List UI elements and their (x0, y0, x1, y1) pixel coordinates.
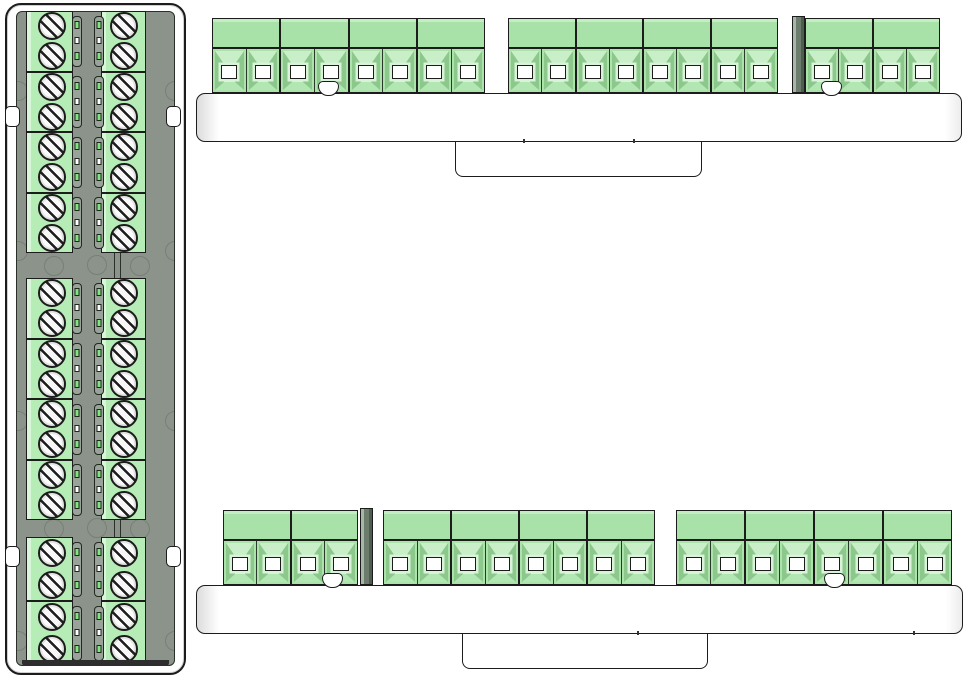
capsule-contact (75, 21, 80, 29)
terminal-block-band (417, 18, 485, 48)
wire-opening (847, 65, 863, 79)
screw-terminal (38, 12, 66, 40)
clamp-capsule (94, 464, 104, 516)
capsule-contact (75, 565, 80, 572)
gap-connector-line (120, 520, 121, 537)
terminal-block-band (643, 18, 711, 48)
capsule-contact (75, 173, 80, 181)
screw-terminal (38, 73, 66, 101)
terminal-block-front (873, 48, 941, 93)
wire-entry-pole (451, 49, 485, 92)
wire-entry-pole (677, 541, 710, 584)
wire-entry-pole (417, 541, 451, 584)
capsule-contact (97, 486, 102, 493)
wire-opening (652, 65, 668, 79)
wire-entry-pole (520, 541, 553, 584)
terminal-block-band (223, 510, 291, 540)
capsule-contact (97, 319, 102, 327)
wire-opening (221, 65, 237, 79)
capsule-contact (75, 98, 80, 105)
capsule-contact (75, 409, 80, 417)
wire-entry-pole (292, 541, 324, 584)
terminal-block-front (508, 48, 576, 93)
screw-terminal (38, 539, 66, 567)
ghost-circle (44, 519, 64, 539)
module-bottom-seal (22, 660, 169, 666)
capsule-contact (75, 425, 80, 432)
wire-entry-pole (609, 49, 642, 92)
ghost-circle (87, 255, 107, 275)
ghost-circle (44, 256, 64, 276)
board-edge-mark (637, 631, 639, 635)
capsule-contact (75, 113, 80, 121)
clamp-capsule (94, 404, 104, 456)
capsule-contact (75, 470, 80, 478)
ghost-circle (165, 631, 175, 651)
clamp-capsule (72, 343, 82, 395)
wire-opening (824, 557, 840, 571)
terminal-block-front (711, 48, 779, 93)
wire-opening (255, 65, 271, 79)
terminal-block-front (643, 48, 711, 93)
screw-terminal (38, 635, 66, 663)
circuit-board-edge (196, 93, 962, 142)
capsule-contact (75, 440, 80, 448)
capsule-contact (97, 173, 102, 181)
wire-opening (753, 65, 769, 79)
capsule-contact (75, 234, 80, 242)
capsule-contact (97, 548, 102, 556)
screw-terminal (38, 603, 66, 631)
wire-entry-pole (509, 49, 541, 92)
wire-opening (460, 557, 476, 571)
ghost-circle (165, 81, 175, 101)
screw-terminal (38, 491, 66, 519)
din-side-clip (166, 546, 181, 567)
capsule-contact (75, 486, 80, 493)
capsule-contact (97, 158, 102, 165)
board-connector-tab (462, 632, 708, 669)
screw-terminal (110, 461, 138, 489)
terminal-block-front (676, 540, 745, 585)
capsule-contact (75, 581, 80, 589)
capsule-contact (97, 82, 102, 90)
wire-entry-pole (621, 541, 655, 584)
wire-opening (300, 557, 316, 571)
terminal-block-band (814, 510, 883, 540)
wire-entry-pole (541, 49, 574, 92)
wire-entry-pole (246, 49, 280, 92)
clamp-capsule (94, 137, 104, 189)
capsule-contact (97, 501, 102, 509)
screw-terminal (38, 461, 66, 489)
screw-terminal (110, 603, 138, 631)
wire-opening (358, 65, 374, 79)
wire-entry-pole (485, 541, 519, 584)
capsule-contact (75, 319, 80, 327)
wire-entry-pole (452, 541, 485, 584)
gap-connector-line (114, 253, 115, 278)
terminal-block-side-profile (360, 508, 373, 585)
wire-entry-pole (710, 541, 744, 584)
wire-entry-pole (917, 541, 951, 584)
clamp-capsule (94, 283, 104, 335)
terminal-block-band (519, 510, 587, 540)
wire-opening (265, 557, 281, 571)
terminal-block-front (417, 48, 485, 93)
wire-opening (426, 557, 442, 571)
screw-terminal (38, 224, 66, 252)
board-edge-mark (633, 139, 635, 143)
terminal-block-band (212, 18, 280, 48)
wire-opening (720, 65, 736, 79)
wire-opening (585, 65, 601, 79)
screw-terminal (110, 539, 138, 567)
screw-terminal (110, 103, 138, 131)
capsule-contact (75, 645, 80, 653)
din-side-clip (166, 106, 181, 127)
terminal-block-front (383, 540, 451, 585)
terminal-block-band (291, 510, 359, 540)
capsule-contact (75, 629, 80, 636)
screw-terminal (110, 340, 138, 368)
capsule-contact (75, 158, 80, 165)
wire-opening (392, 65, 408, 79)
screw-terminal (110, 194, 138, 222)
terminal-block-band (280, 18, 348, 48)
clamp-capsule (94, 16, 104, 68)
wire-entry-pole (746, 541, 779, 584)
capsule-contact (75, 304, 80, 311)
terminal-block-band (745, 510, 814, 540)
wire-opening (893, 557, 909, 571)
wire-entry-pole (577, 49, 609, 92)
wire-entry-pole (848, 541, 882, 584)
wire-opening (232, 557, 248, 571)
terminal-block-band (587, 510, 655, 540)
circuit-board-edge (196, 585, 963, 634)
wire-opening (494, 557, 510, 571)
wire-entry-pole (744, 49, 777, 92)
clamp-capsule (72, 542, 82, 597)
clamp-capsule (94, 606, 104, 661)
screw-terminal (38, 370, 66, 398)
capsule-contact (75, 82, 80, 90)
wire-entry-pole (644, 49, 676, 92)
wire-opening (596, 557, 612, 571)
wire-entry-pole (384, 541, 417, 584)
terminal-block-band (349, 18, 417, 48)
wire-entry-pole (418, 49, 451, 92)
clamp-capsule (94, 76, 104, 128)
board-edge-mark (913, 631, 915, 635)
wire-opening (550, 65, 566, 79)
terminal-block-band (883, 510, 952, 540)
screw-terminal (110, 370, 138, 398)
clamp-capsule (94, 542, 104, 597)
terminal-block-front (223, 540, 291, 585)
capsule-contact (75, 380, 80, 388)
wire-opening (915, 65, 931, 79)
wire-opening (685, 65, 701, 79)
capsule-contact (75, 349, 80, 357)
terminal-block-band (576, 18, 644, 48)
screw-terminal (38, 133, 66, 161)
clamp-capsule (72, 606, 82, 661)
screw-terminal (110, 635, 138, 663)
capsule-contact (97, 380, 102, 388)
wire-entry-pole (874, 49, 906, 92)
clamp-capsule (94, 197, 104, 249)
din-side-clip (5, 106, 20, 127)
capsule-contact (97, 288, 102, 296)
wire-opening (460, 65, 476, 79)
ghost-circle (165, 411, 175, 431)
wire-opening (426, 65, 442, 79)
capsule-contact (97, 98, 102, 105)
wire-entry-pole (382, 49, 416, 92)
ghost-circle (165, 241, 175, 261)
capsule-contact (97, 365, 102, 372)
capsule-contact (75, 612, 80, 620)
capsule-contact (97, 470, 102, 478)
wire-opening (755, 557, 771, 571)
gap-connector-line (120, 253, 121, 278)
wire-entry-pole (838, 49, 871, 92)
terminal-block-band (805, 18, 873, 48)
screw-terminal (38, 400, 66, 428)
capsule-contact (75, 288, 80, 296)
wire-opening (686, 557, 702, 571)
capsule-contact (97, 219, 102, 226)
capsule-contact (75, 548, 80, 556)
wire-entry-pole (676, 49, 709, 92)
capsule-contact (97, 581, 102, 589)
screw-terminal (110, 571, 138, 599)
wire-opening (814, 65, 830, 79)
capsule-contact (97, 37, 102, 44)
ghost-circle (87, 518, 107, 538)
screw-terminal (38, 571, 66, 599)
capsule-contact (75, 203, 80, 211)
terminal-block-front (745, 540, 814, 585)
terminal-block-side-profile (792, 16, 805, 93)
terminal-block-front (576, 48, 644, 93)
clamp-capsule (72, 464, 82, 516)
screw-terminal (110, 133, 138, 161)
capsule-contact (97, 565, 102, 572)
board-edge-mark (523, 139, 525, 143)
screw-terminal (38, 103, 66, 131)
capsule-contact (75, 365, 80, 372)
terminal-block-front (212, 48, 280, 93)
wire-opening (927, 557, 943, 571)
capsule-contact (97, 629, 102, 636)
terminal-block-front (587, 540, 655, 585)
screw-terminal (110, 224, 138, 252)
screw-terminal (38, 194, 66, 222)
wire-entry-pole (906, 49, 939, 92)
wire-opening (290, 65, 306, 79)
wire-opening (789, 557, 805, 571)
terminal-block-band (451, 510, 519, 540)
wire-opening (562, 557, 578, 571)
wire-opening (630, 557, 646, 571)
wire-opening (720, 557, 736, 571)
capsule-contact (97, 113, 102, 121)
terminal-block-front (519, 540, 587, 585)
capsule-contact (97, 304, 102, 311)
wire-opening (333, 557, 349, 571)
capsule-contact (97, 203, 102, 211)
capsule-contact (97, 349, 102, 357)
board-connector-tab (455, 140, 702, 177)
terminal-block-front (883, 540, 952, 585)
screw-terminal (110, 491, 138, 519)
ghost-circle (130, 519, 150, 539)
terminal-block-band (676, 510, 745, 540)
wire-entry-pole (588, 541, 621, 584)
wire-opening (392, 557, 408, 571)
screw-terminal (110, 12, 138, 40)
capsule-contact (75, 501, 80, 509)
terminal-block-band (383, 510, 451, 540)
wire-opening (528, 557, 544, 571)
capsule-contact (97, 440, 102, 448)
screw-terminal (110, 279, 138, 307)
capsule-contact (97, 234, 102, 242)
capsule-contact (97, 425, 102, 432)
clamp-capsule (72, 16, 82, 68)
wire-entry-pole (256, 541, 289, 584)
capsule-contact (97, 645, 102, 653)
wire-opening (323, 65, 339, 79)
wire-entry-pole (281, 49, 314, 92)
clamp-capsule (94, 343, 104, 395)
wire-entry-pole (350, 49, 383, 92)
wire-entry-pole (712, 49, 744, 92)
capsule-contact (75, 52, 80, 60)
wire-entry-pole (224, 541, 256, 584)
din-side-clip (5, 546, 20, 567)
terminal-block-front (349, 48, 417, 93)
gap-connector-line (114, 520, 115, 537)
cad-viewport (0, 0, 968, 678)
wire-opening (882, 65, 898, 79)
capsule-contact (75, 37, 80, 44)
ghost-circle (130, 256, 150, 276)
clamp-capsule (72, 76, 82, 128)
clamp-capsule (72, 404, 82, 456)
capsule-contact (75, 142, 80, 150)
screw-terminal (38, 340, 66, 368)
terminal-block-band (873, 18, 941, 48)
wire-entry-pole (553, 541, 587, 584)
wire-entry-pole (213, 49, 246, 92)
clamp-capsule (72, 197, 82, 249)
screw-terminal (38, 279, 66, 307)
terminal-block-band (711, 18, 779, 48)
screw-terminal (110, 73, 138, 101)
capsule-contact (97, 21, 102, 29)
capsule-contact (75, 219, 80, 226)
terminal-block-band (508, 18, 576, 48)
terminal-block-front (451, 540, 519, 585)
capsule-contact (97, 409, 102, 417)
wire-opening (517, 65, 533, 79)
clamp-capsule (72, 137, 82, 189)
clamp-capsule (72, 283, 82, 335)
wire-opening (618, 65, 634, 79)
capsule-contact (97, 142, 102, 150)
screw-terminal (110, 400, 138, 428)
capsule-contact (97, 52, 102, 60)
wire-opening (858, 557, 874, 571)
capsule-contact (97, 612, 102, 620)
wire-entry-pole (884, 541, 917, 584)
wire-entry-pole (779, 541, 813, 584)
